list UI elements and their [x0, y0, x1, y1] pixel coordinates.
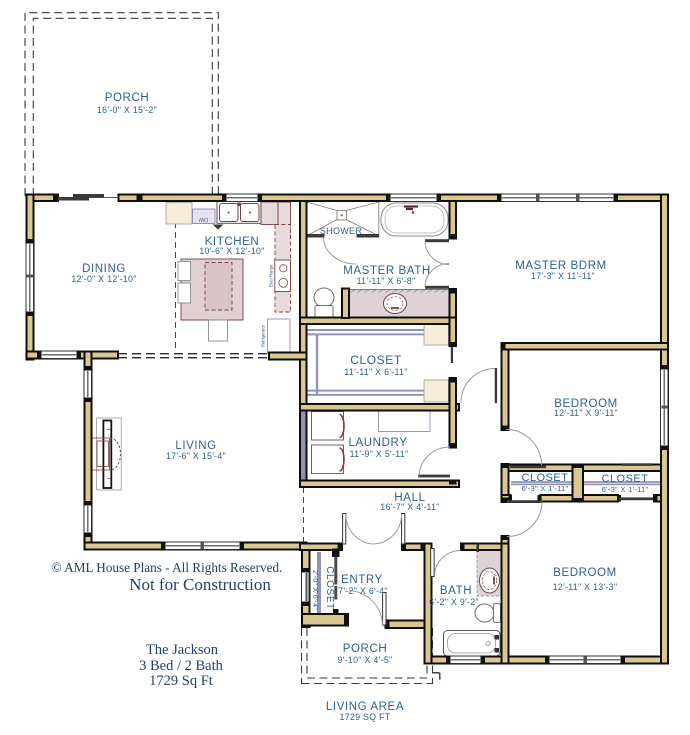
svg-text:11'-11" X 6'-8": 11'-11" X 6'-8" [357, 276, 416, 286]
svg-text:The Jackson: The Jackson [146, 642, 219, 658]
svg-text:6'-2" X 9'-2": 6'-2" X 9'-2" [429, 597, 479, 607]
svg-text:2'-0" X 6'-4": 2'-0" X 6'-4" [311, 570, 318, 611]
svg-text:PORCH: PORCH [105, 92, 150, 104]
svg-text:CLOSET: CLOSET [522, 472, 569, 484]
svg-text:Refrigerator: Refrigerator [261, 324, 266, 347]
svg-text:3 Bed / 2 Bath: 3 Bed / 2 Bath [139, 658, 224, 674]
svg-text:Elect Range: Elect Range [269, 264, 274, 287]
svg-text:11'-11" X 6'-11": 11'-11" X 6'-11" [344, 367, 407, 377]
svg-text:CLOSET: CLOSET [324, 566, 335, 610]
svg-text:12'-11" X 9'-11": 12'-11" X 9'-11" [554, 408, 618, 418]
svg-text:DW: DW [198, 216, 208, 222]
svg-text:PORCH: PORCH [343, 643, 388, 655]
svg-text:10'-6" X 12'-10": 10'-6" X 12'-10" [199, 246, 264, 256]
svg-text:16'-0" X 15'-2": 16'-0" X 15'-2" [97, 105, 157, 115]
svg-text:ENTRY: ENTRY [341, 574, 383, 586]
svg-text:7'-2" X 6'-4": 7'-2" X 6'-4" [338, 586, 388, 596]
svg-text:BATH: BATH [440, 585, 472, 597]
svg-text:CLOSET: CLOSET [350, 353, 402, 367]
svg-text:BEDROOM: BEDROOM [553, 567, 617, 579]
svg-text:16'-7" X 4'-11": 16'-7" X 4'-11" [380, 502, 439, 512]
svg-text:Not for Construction: Not for Construction [129, 575, 271, 594]
svg-text:17'-3" X 11'-11": 17'-3" X 11'-11" [531, 271, 595, 281]
svg-text:LAUNDRY: LAUNDRY [349, 437, 408, 449]
svg-text:9'-10" X 4'-5": 9'-10" X 4'-5" [338, 655, 393, 665]
svg-text:11'-9" X 5'-11": 11'-9" X 5'-11" [350, 449, 409, 459]
svg-text:6'-3" X 1'-11": 6'-3" X 1'-11" [522, 484, 569, 493]
svg-text:12'-0" X 12'-10": 12'-0" X 12'-10" [71, 274, 136, 284]
svg-text:1729 SQ FT: 1729 SQ FT [340, 712, 391, 722]
svg-text:6'-3" X 1'-11": 6'-3" X 1'-11" [602, 485, 649, 494]
svg-text:1729 Sq Ft: 1729 Sq Ft [149, 673, 213, 689]
svg-text:17'-6" X 15'-4": 17'-6" X 15'-4" [166, 451, 226, 461]
svg-text:CLOSET: CLOSET [602, 473, 649, 485]
svg-text:© AML House Plans - All Rights: © AML House Plans - All Rights Reserved. [52, 560, 283, 575]
svg-text:SHOWER: SHOWER [320, 226, 363, 236]
svg-text:12'-11" X 13'-3": 12'-11" X 13'-3" [553, 582, 618, 592]
